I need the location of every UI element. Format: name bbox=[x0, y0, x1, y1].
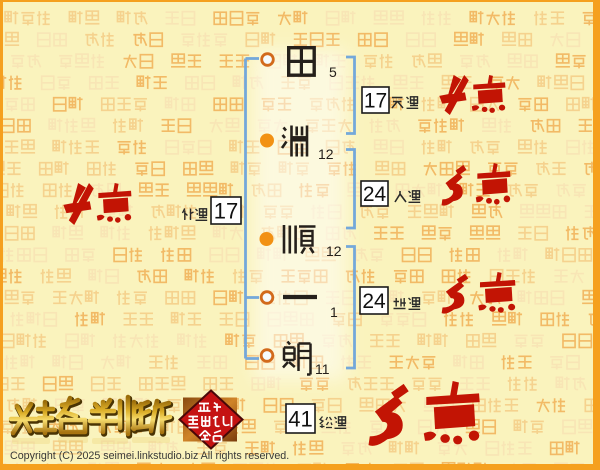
svg-text:Copyright (C) 2025 seimei.link: Copyright (C) 2025 seimei.linkstudio.biz… bbox=[10, 450, 289, 462]
svg-text:5: 5 bbox=[329, 64, 337, 80]
svg-text:17: 17 bbox=[214, 198, 238, 223]
svg-text:17: 17 bbox=[364, 90, 387, 113]
svg-text:24: 24 bbox=[362, 290, 386, 313]
svg-text:41: 41 bbox=[288, 406, 312, 431]
svg-text:1: 1 bbox=[330, 304, 338, 320]
svg-text:12: 12 bbox=[326, 243, 342, 259]
svg-text:12: 12 bbox=[318, 146, 334, 162]
svg-text:24: 24 bbox=[363, 183, 387, 206]
svg-text:11: 11 bbox=[315, 361, 330, 377]
